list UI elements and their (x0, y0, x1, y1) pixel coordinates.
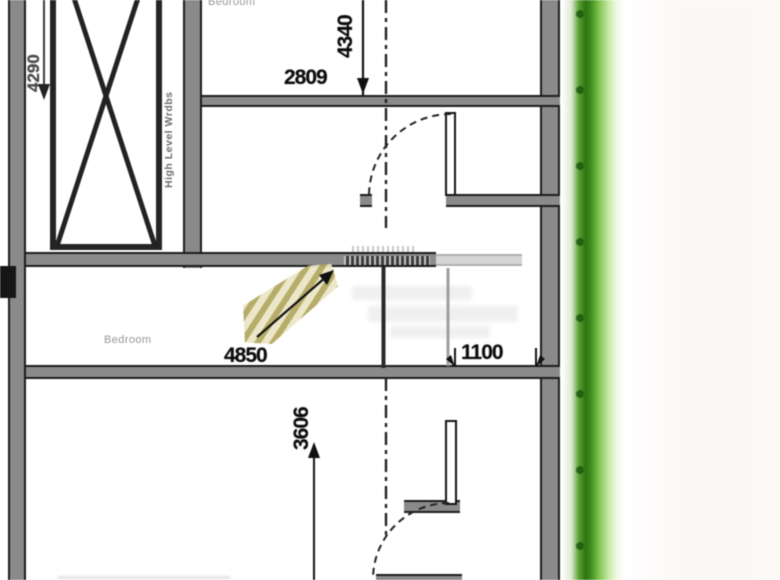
note-high-level-wardrobes: High Level Wrdbs (163, 56, 175, 188)
faded-label-blob (352, 286, 472, 300)
boundary-hedge-strip (562, 0, 628, 580)
door-swing-arc-top (369, 114, 451, 196)
wall-microtext (344, 256, 430, 265)
hedge-texture (574, 0, 586, 580)
room-label-bedroom-top: Bedroom (208, 0, 255, 8)
wall-right-outer (540, 0, 560, 580)
room-label-bedroom-mid: Bedroom (104, 334, 151, 346)
dimension-4850: 4850 (224, 344, 267, 368)
dimension-1100: 1100 (461, 341, 503, 365)
door-leaf-top (445, 112, 456, 196)
dimension-3606: 3606 (290, 382, 314, 450)
door-swing-arc-bottom (373, 503, 449, 579)
wall-bottom-segment (376, 574, 462, 580)
dim-arrow-4340 (357, 78, 369, 94)
wall-corridor-vertical (183, 0, 202, 268)
wall-middle-faded (436, 254, 522, 266)
dimension-4290: 4290 (24, 28, 44, 92)
floor-plan: Bedroom Bedroom High Level Wrdbs 4290 43… (0, 0, 780, 580)
wall-main-horizontal (26, 365, 560, 379)
site-background (626, 0, 780, 580)
stair-hatch (243, 264, 339, 344)
faded-label-blob (368, 306, 518, 322)
dimension-2809: 2809 (284, 66, 327, 90)
wall-left-block (0, 266, 16, 298)
door-leaf-bottom (445, 420, 457, 505)
wall-door1-jamb (360, 194, 372, 207)
faded-bottom-line (58, 576, 230, 579)
faded-label-blob (390, 326, 490, 338)
wall-top-horizontal (202, 95, 560, 107)
wall-microtext-upper (352, 246, 414, 252)
dimension-4340: 4340 (334, 0, 358, 58)
wall-door1-horizontal (446, 194, 560, 207)
wardrobe-box (50, 0, 162, 250)
